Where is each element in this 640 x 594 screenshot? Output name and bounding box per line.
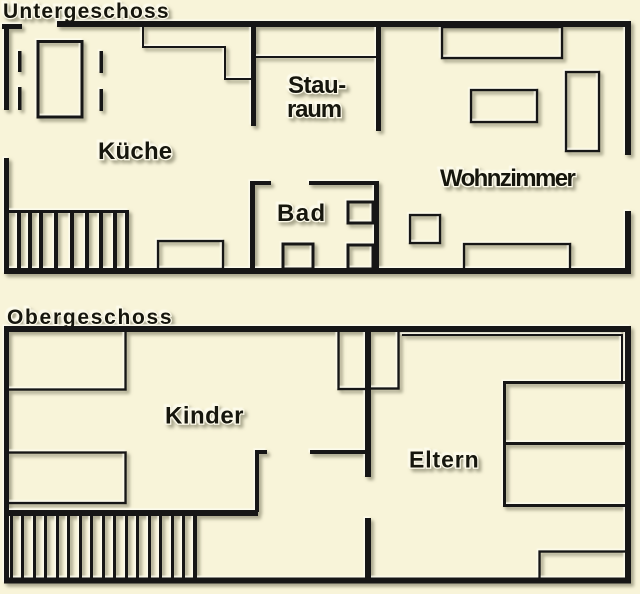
- svg-text:Küche: Küche: [98, 138, 172, 165]
- svg-text:Untergeschoss: Untergeschoss: [3, 0, 170, 23]
- svg-text:Kinder: Kinder: [165, 403, 244, 430]
- svg-text:Obergeschoss: Obergeschoss: [7, 306, 173, 329]
- svg-text:Bad: Bad: [277, 200, 327, 227]
- svg-text:Eltern: Eltern: [409, 447, 480, 473]
- svg-text:Stau-: Stau-: [288, 72, 346, 99]
- svg-text:Wohnzimmer: Wohnzimmer: [440, 165, 575, 192]
- svg-text:raum: raum: [287, 96, 341, 123]
